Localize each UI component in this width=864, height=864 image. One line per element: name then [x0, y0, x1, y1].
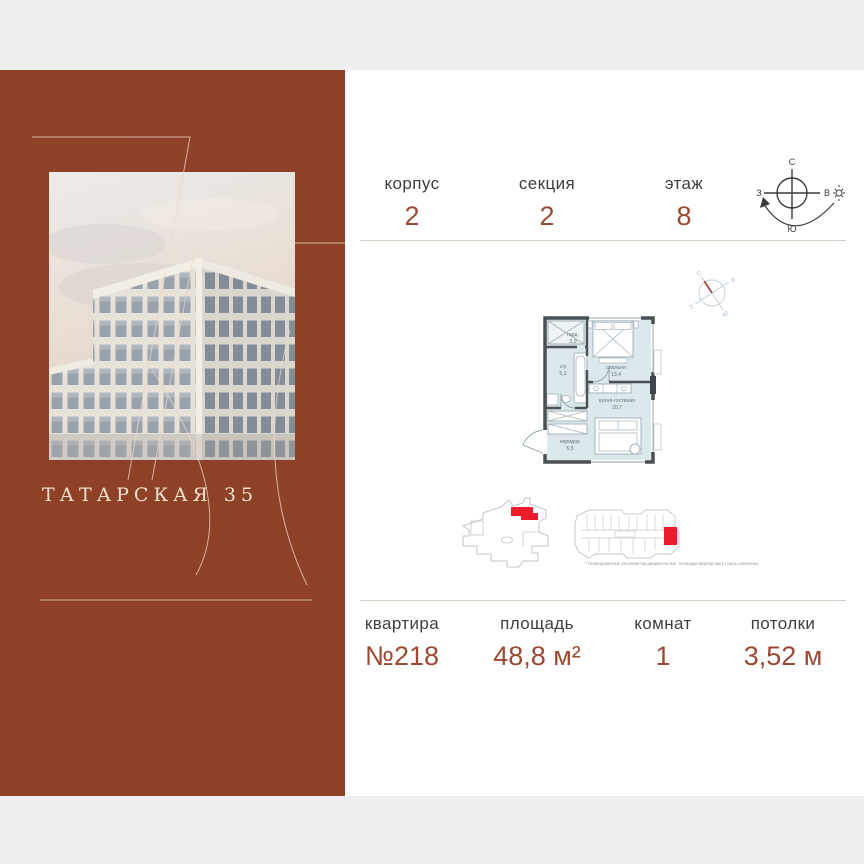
compass-north-label: С — [789, 157, 796, 167]
header-stat-sektsiya: секция 2 — [495, 174, 599, 232]
mini-west-label: З — [689, 304, 696, 311]
stat-value: 2 — [360, 201, 464, 232]
compass-east-label: В — [824, 188, 830, 198]
room-area: 20,7 — [612, 405, 622, 411]
brand-title: ТАТАРСКАЯ 35 — [42, 484, 258, 506]
room-name: спальня — [606, 365, 626, 371]
compass-icon: С Ю З В — [750, 153, 850, 245]
stat-value: 3,52 м — [731, 641, 835, 672]
mini-south-label: Ю — [722, 311, 730, 319]
room-area: 5,5 — [566, 446, 573, 452]
detail-stat-rooms: комнат 1 — [611, 614, 715, 672]
divider-top — [360, 240, 846, 241]
plate-highlight — [664, 527, 677, 545]
compass-west-label: З — [756, 188, 761, 198]
room-name: гард. — [567, 332, 579, 338]
divider-bottom — [360, 600, 846, 601]
brand-panel: ТАТАРСКАЯ 35 — [0, 70, 345, 796]
stat-value: 8 — [632, 201, 736, 232]
plan-disclaimer: * Планировочные решения предварительные,… — [585, 562, 751, 566]
floor-plate-mini — [571, 506, 681, 562]
room-name: кухня-гостиная — [599, 398, 635, 404]
stat-label: корпус — [360, 174, 464, 194]
stat-value: 48,8 м² — [485, 641, 589, 672]
stat-label: потолки — [731, 614, 835, 634]
sun-icon — [833, 185, 845, 201]
room-area: 13,4 — [611, 372, 621, 378]
info-panel: корпус 2 секция 2 этаж 8 С — [345, 70, 864, 796]
header-stat-korpus: корпус 2 — [360, 174, 464, 232]
stat-value: 1 — [611, 641, 715, 672]
building-photo — [49, 172, 295, 460]
stat-value: 2 — [495, 201, 599, 232]
stat-label: квартира — [350, 614, 454, 634]
mini-east-label: В — [730, 277, 737, 284]
balcony-door-block — [650, 376, 656, 394]
cloud — [139, 198, 279, 230]
room-area: 3,9 — [569, 339, 576, 345]
detail-stat-area: площадь 48,8 м² — [485, 614, 589, 672]
compass-south-label: Ю — [787, 224, 796, 234]
detail-stat-apartment: квартира №218 — [350, 614, 454, 672]
detail-stat-ceiling: потолки 3,52 м — [731, 614, 835, 672]
stat-label: этаж — [632, 174, 736, 194]
room-name: с/у — [560, 364, 567, 370]
stat-label: секция — [495, 174, 599, 194]
page-background: ТАТАРСКАЯ 35 корпус 2 секция 2 этаж 8 — [0, 0, 864, 864]
stat-label: площадь — [485, 614, 589, 634]
floor-plan: гард. 3,9 с/у 5,2 спальня 13,4 кухня-гос… — [519, 312, 665, 468]
listing-card: ТАТАРСКАЯ 35 корпус 2 секция 2 этаж 8 — [0, 70, 864, 796]
mini-north-label: С — [696, 270, 703, 278]
room-name: коридор — [560, 439, 580, 445]
compass-needle — [704, 281, 712, 293]
plan-compass-icon: С Ю З В — [683, 266, 741, 322]
header-stat-etazh: этаж 8 — [632, 174, 736, 232]
room-area: 5,2 — [559, 371, 566, 377]
stat-label: комнат — [611, 614, 715, 634]
site-plan-mini — [449, 496, 553, 578]
stat-value: №218 — [350, 641, 454, 672]
